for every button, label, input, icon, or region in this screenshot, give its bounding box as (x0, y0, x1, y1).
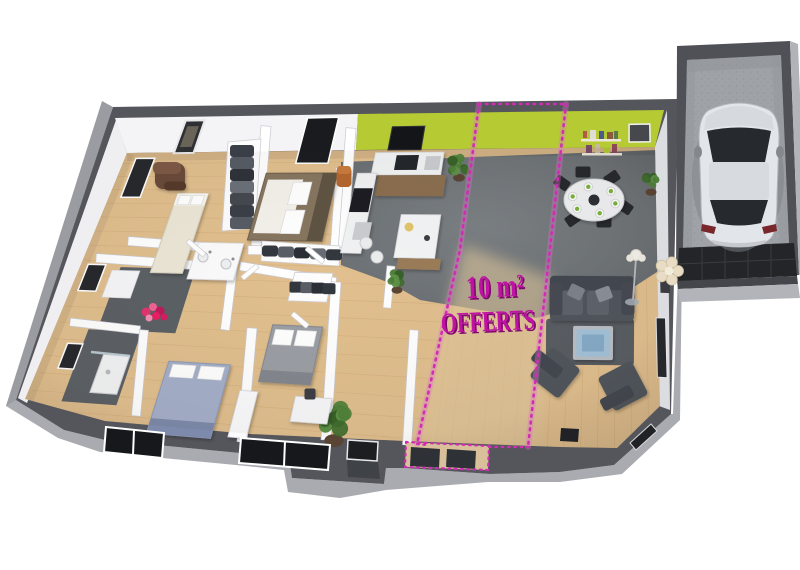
svg-text:10 m²: 10 m² (465, 267, 525, 305)
svg-text:OFFERTS: OFFERTS (440, 304, 535, 340)
